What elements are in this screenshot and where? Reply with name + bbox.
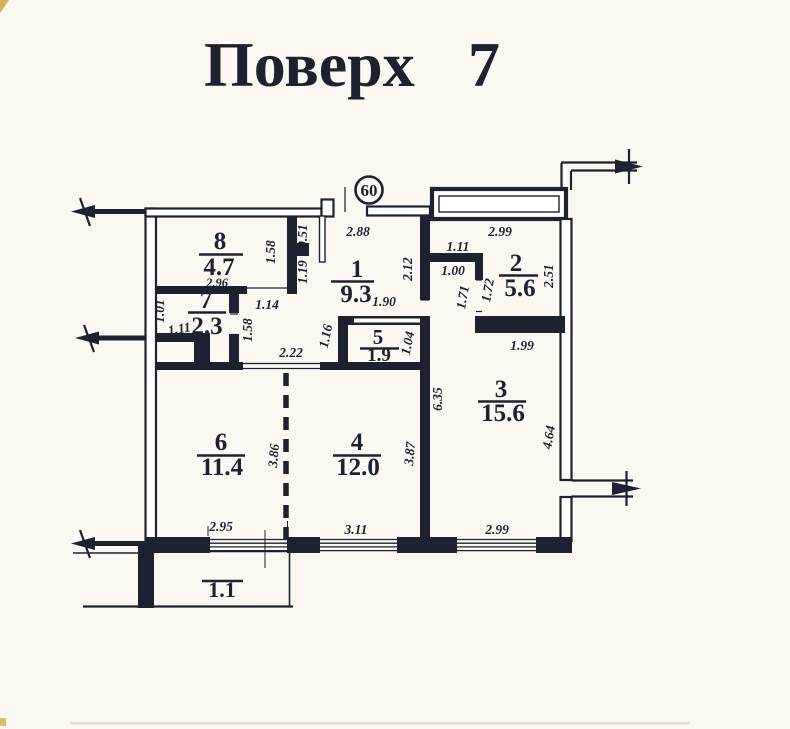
dim-window-left: 2.95 (208, 519, 233, 534)
wall-top-jog (322, 200, 334, 217)
wall-right-lower (561, 497, 572, 541)
wall-pier-4 (536, 537, 572, 553)
dim-room5-left: 1.16 (316, 323, 336, 349)
room-4-area: 12.0 (336, 454, 380, 481)
room-8-label: 8 4.7 2.96 (199, 228, 243, 290)
wall-left-outer (146, 209, 157, 543)
dim-room7-left-a: 1.01 (152, 299, 167, 323)
room-7-label: 7 2.3 (188, 287, 226, 340)
dim-room4-right: 3.87 (401, 440, 418, 467)
wall-top-left (146, 209, 322, 217)
room-1-number: 1 (351, 256, 364, 283)
wall-center-upper (420, 215, 430, 300)
dim-corridor-left: 1.71 (453, 284, 472, 310)
page-title-floor-number: 7 (468, 29, 500, 100)
room-6-area: 11.4 (201, 454, 244, 481)
wall-room5-left (338, 316, 348, 362)
room-6-label: 6 11.4 (197, 429, 245, 481)
window-left (210, 540, 287, 551)
dim-corridor-door: 1.00 (441, 263, 465, 278)
dim-entry-width: 2.88 (345, 224, 370, 239)
wall-hall-bottom-left (156, 362, 243, 370)
dimension-ticks (208, 187, 425, 568)
window-right (457, 540, 536, 551)
wall-room5-top-slot (354, 319, 420, 323)
room-1-label: 1 9.3 (331, 256, 374, 308)
room-3-area: 15.6 (481, 400, 525, 427)
wall-box-inner (439, 196, 559, 212)
arrow-left-middle (75, 325, 146, 352)
bottom-wall (73, 537, 572, 608)
room-2-number: 2 (510, 250, 523, 277)
dim-vestibule-upper: 0.51 (295, 224, 310, 248)
room-4-label: 4 12.0 (333, 429, 381, 481)
dim-room5-right: 1.04 (398, 330, 418, 356)
arrow-right-bottom (572, 471, 642, 506)
dim-room3-top: 1.99 (510, 338, 534, 353)
room-8-number: 8 (214, 228, 227, 255)
dim-corridor-top: 1.11 (447, 239, 470, 254)
wall-center-lower (420, 318, 430, 540)
dim-hall-opening: 2.22 (278, 345, 303, 360)
dim-room2-top: 2.99 (487, 224, 512, 239)
room-3-number: 3 (495, 376, 508, 403)
wall-right-outer (561, 219, 572, 480)
dim-window-right: 2.99 (484, 522, 509, 537)
dim-room3-right: 4.64 (539, 424, 558, 451)
floor-plan-drawing: Поверх 7 (0, 0, 790, 729)
window-middle (320, 540, 397, 551)
dim-room3-left: 6.35 (430, 387, 445, 411)
room-2-area: 5.6 (504, 275, 535, 302)
room-2-label: 2 5.6 (499, 250, 538, 302)
wall-vestibule-line (320, 216, 326, 262)
dim-hall-right: 2.12 (400, 257, 415, 282)
dim-vestibule-lower: 1.19 (295, 260, 310, 284)
dim-partition: 3.86 (265, 443, 282, 469)
balcony-area: 1.1 (208, 577, 236, 602)
windows (210, 540, 536, 551)
wall-room2-bottom (475, 316, 565, 333)
scanned-floor-plan-page: Поверх 7 (0, 0, 790, 729)
room-7-area: 2.3 (191, 313, 222, 340)
dim-room2-door: 1.72 (478, 277, 497, 303)
room-1-area: 9.3 (340, 281, 371, 308)
wall-top-right (367, 207, 430, 216)
wall-room2-left (475, 255, 483, 280)
scan-corner-mark (0, 0, 9, 13)
wall-balcony-left (138, 546, 154, 608)
arrow-right-top (561, 149, 643, 190)
room-4-number: 4 (351, 429, 364, 456)
room-5-area: 1.9 (367, 345, 391, 366)
room-3-label: 3 15.6 (478, 376, 526, 427)
dim-room2-right: 2.51 (541, 264, 556, 289)
room-6-number: 6 (215, 429, 228, 456)
balcony-label: 1.1 (202, 577, 243, 602)
room-5-label: 5 1.9 (360, 325, 399, 366)
scan-smudge (70, 722, 690, 725)
dim-room7-right: 1.58 (240, 318, 255, 342)
scan-edge-mark (0, 718, 6, 726)
dim-window-mid: 3.11 (344, 522, 368, 537)
wall-pier-1 (146, 537, 210, 553)
wall-pier-3 (397, 537, 457, 553)
apartment-badge: 60 (356, 177, 383, 204)
dim-hall-width: 1.90 (372, 294, 396, 309)
wall-pier-2 (287, 537, 320, 553)
arrow-left-top (71, 198, 146, 226)
apartment-badge-number: 60 (361, 181, 378, 200)
wall-room7-right-upper (229, 294, 239, 313)
dim-room7-door: 1.14 (255, 297, 279, 312)
room-7-number: 7 (200, 287, 213, 314)
dim-room8-right: 1.58 (263, 240, 278, 264)
page-title: Поверх (204, 29, 415, 100)
arrow-left-bottom (71, 530, 146, 558)
